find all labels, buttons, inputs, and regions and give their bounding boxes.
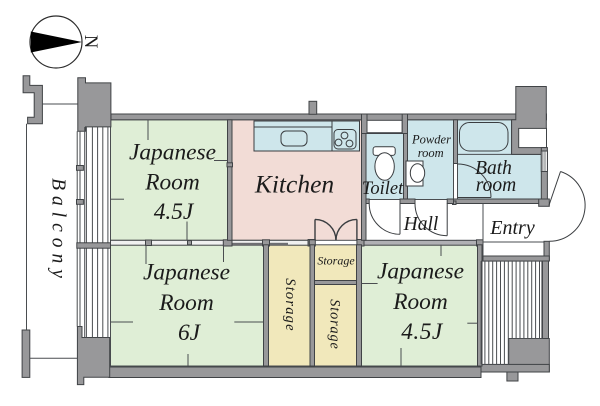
svg-text:room: room bbox=[418, 146, 444, 160]
svg-text:Storage: Storage bbox=[282, 278, 298, 332]
svg-text:Room: Room bbox=[144, 170, 200, 196]
svg-text:N: N bbox=[80, 35, 100, 48]
svg-text:Kitchen: Kitchen bbox=[254, 170, 334, 199]
svg-text:Room: Room bbox=[392, 289, 448, 315]
svg-text:Entry: Entry bbox=[489, 217, 535, 239]
svg-text:Hall: Hall bbox=[403, 214, 439, 235]
svg-text:Storage: Storage bbox=[327, 299, 343, 349]
svg-text:Storage: Storage bbox=[317, 254, 355, 268]
svg-text:Room: Room bbox=[158, 290, 214, 316]
svg-text:4.5J: 4.5J bbox=[154, 199, 195, 225]
svg-text:Japanese: Japanese bbox=[143, 260, 230, 286]
svg-text:4.5J: 4.5J bbox=[401, 319, 444, 345]
svg-text:6J: 6J bbox=[178, 320, 202, 346]
svg-text:room: room bbox=[476, 175, 516, 196]
svg-text:Japanese: Japanese bbox=[129, 140, 216, 166]
svg-text:Toilet: Toilet bbox=[362, 179, 404, 199]
svg-text:Japanese: Japanese bbox=[377, 259, 464, 285]
svg-text:Powder: Powder bbox=[411, 133, 451, 147]
svg-text:Balcony: Balcony bbox=[48, 178, 69, 284]
